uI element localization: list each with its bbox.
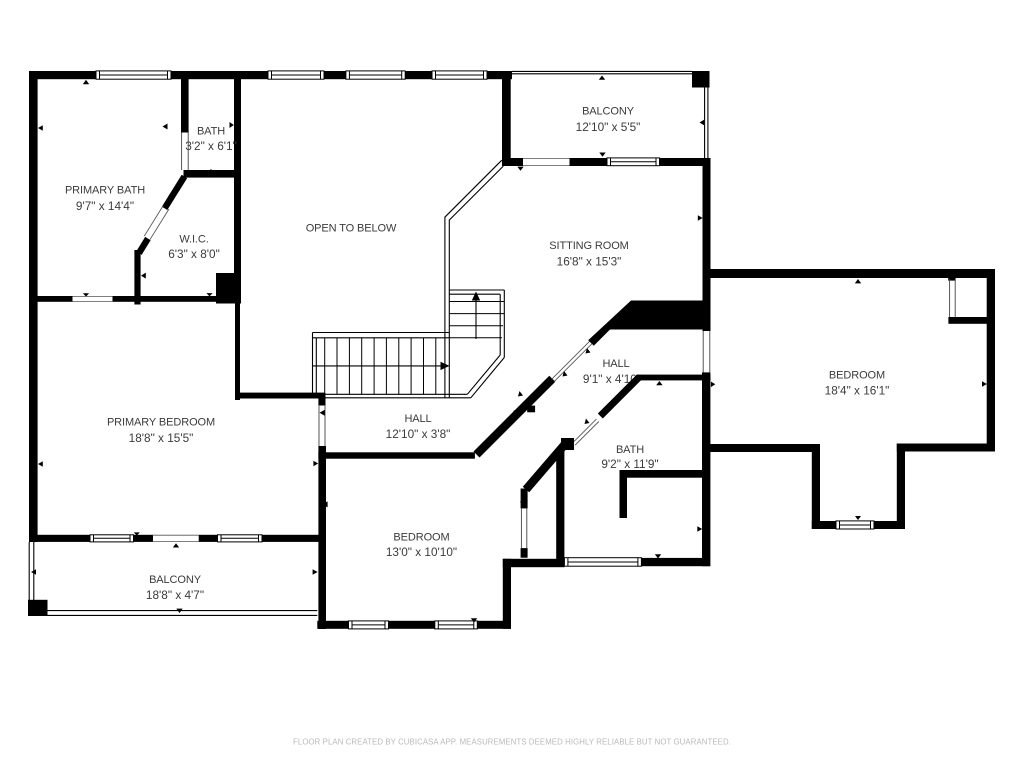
svg-text:FLOOR PLAN CREATED BY CUBICASA: FLOOR PLAN CREATED BY CUBICASA APP. MEAS… bbox=[293, 737, 731, 746]
svg-text:3'2" x 6'1": 3'2" x 6'1" bbox=[185, 139, 237, 153]
svg-text:SITTING ROOM: SITTING ROOM bbox=[549, 240, 628, 252]
svg-text:BEDROOM: BEDROOM bbox=[393, 532, 449, 544]
svg-text:BALCONY: BALCONY bbox=[149, 574, 202, 586]
svg-text:BEDROOM: BEDROOM bbox=[829, 370, 885, 382]
svg-text:BATH: BATH bbox=[616, 444, 644, 456]
svg-text:12'10" x 3'8": 12'10" x 3'8" bbox=[386, 427, 451, 441]
svg-text:HALL: HALL bbox=[602, 358, 629, 370]
svg-text:W.I.C.: W.I.C. bbox=[179, 234, 208, 246]
svg-text:BATH: BATH bbox=[197, 126, 225, 138]
svg-text:BALCONY: BALCONY bbox=[582, 106, 635, 118]
svg-text:PRIMARY BEDROOM: PRIMARY BEDROOM bbox=[107, 417, 215, 429]
svg-text:16'8" x 15'3": 16'8" x 15'3" bbox=[557, 255, 622, 269]
svg-text:6'3" x 8'0": 6'3" x 8'0" bbox=[168, 247, 220, 261]
svg-text:OPEN TO BELOW: OPEN TO BELOW bbox=[306, 223, 397, 235]
svg-text:18'8" x 15'5": 18'8" x 15'5" bbox=[129, 431, 194, 445]
svg-text:18'4" x 16'1": 18'4" x 16'1" bbox=[825, 384, 890, 398]
svg-text:13'0" x 10'10": 13'0" x 10'10" bbox=[386, 545, 457, 559]
svg-text:PRIMARY BATH: PRIMARY BATH bbox=[65, 185, 145, 197]
svg-text:9'7" x 14'4": 9'7" x 14'4" bbox=[76, 199, 134, 213]
svg-text:9'2" x 11'9": 9'2" x 11'9" bbox=[601, 457, 658, 471]
svg-text:12'10" x 5'5": 12'10" x 5'5" bbox=[576, 120, 641, 134]
svg-text:18'8" x 4'7": 18'8" x 4'7" bbox=[146, 588, 204, 602]
svg-text:HALL: HALL bbox=[404, 413, 431, 425]
